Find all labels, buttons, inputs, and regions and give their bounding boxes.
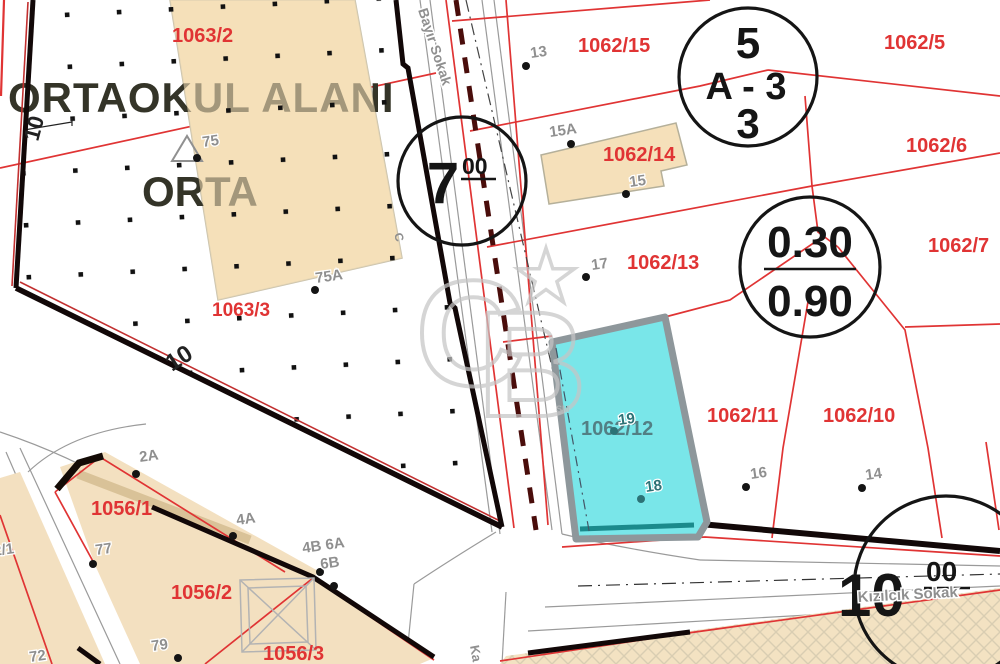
survey-point-72-label: 72 <box>28 647 47 664</box>
ratio-note-030-090-text: 0.30 <box>767 218 853 267</box>
parcel-label-1062-15: 1062/15 <box>578 35 650 57</box>
survey-point-79-label: 79 <box>150 636 169 655</box>
survey-point-77-dot <box>89 560 97 568</box>
parcel-line <box>768 70 1000 96</box>
survey-point-16-label: 16 <box>749 464 768 483</box>
survey-point-15-dot <box>622 190 630 198</box>
survey-point-15a-label: 15A <box>548 120 578 141</box>
parcel-label-1062-11: 1062/11 <box>707 405 778 427</box>
ratio-note-030-090-text: 0.90 <box>767 277 853 326</box>
map-canvas: ORTAOKUL ALANI ORTA C B <box>0 0 1000 664</box>
parcel-label-1063-3: 1063/3 <box>212 300 270 321</box>
survey-point-19-label: 19 <box>617 410 636 429</box>
survey-point-17-dot <box>582 273 590 281</box>
survey-point-2-1-label: 2/1 <box>0 540 15 560</box>
survey-point-14-dot <box>858 484 866 492</box>
survey-point-18-dot <box>637 495 645 503</box>
survey-point-77-label: 77 <box>94 540 113 559</box>
south-road-edge <box>502 592 506 664</box>
survey-point-15a-dot <box>567 140 575 148</box>
plan-note-7-00-text: 7 <box>427 151 459 216</box>
parcel-line <box>812 153 1000 186</box>
parcel-label-1056-2: 1056/2 <box>171 582 232 604</box>
survey-point-2a-label: 2A <box>138 446 160 466</box>
zoning-note-a3-text: 3 <box>736 100 759 147</box>
plan-note-7-00-text: 00 <box>462 153 488 179</box>
survey-point-17-label: 17 <box>590 255 609 274</box>
parcel-label-1056-3: 1056/3 <box>263 643 324 664</box>
parcel-label-1062-7: 1062/7 <box>928 235 989 257</box>
survey-point-14-label: 14 <box>864 465 884 484</box>
survey-point-4a-label: 4A <box>235 509 257 529</box>
survey-point-75a-dot <box>311 286 319 294</box>
parcel-line <box>452 0 710 21</box>
parcel-label-1056-1: 1056/1 <box>91 498 152 520</box>
parcel-label-1062-14: 1062/14 <box>603 144 676 166</box>
survey-point-15-label: 15 <box>628 172 647 191</box>
parcel-label-1062-13: 1062/13 <box>627 252 699 274</box>
survey-point-13-label: 13 <box>529 43 548 62</box>
survey-point-75-dot <box>193 154 201 162</box>
junction-arc <box>414 532 496 584</box>
survey-point-13-dot <box>522 62 530 70</box>
plan-note-10-00-text: 00 <box>926 556 957 587</box>
survey-point-6b-label: 6B <box>319 553 341 573</box>
parcel-line <box>838 247 942 538</box>
survey-point-18-label: 18 <box>644 477 663 496</box>
survey-point-79-dot <box>174 654 182 662</box>
parcel-line <box>905 324 1000 327</box>
survey-point-6b-dot <box>330 582 338 590</box>
zoning-note-a3: 5A - 33 <box>679 8 817 147</box>
watermark-tm: SM <box>556 404 570 414</box>
left-edge-red-line <box>1 0 4 96</box>
survey-point-4a-dot <box>229 532 237 540</box>
parcel-label-1062-5: 1062/5 <box>884 32 945 54</box>
survey-point-16-dot <box>742 483 750 491</box>
watermark-letter-b: B <box>478 280 586 448</box>
parcel-label-1063-2: 1063/2 <box>172 25 233 47</box>
street-name-south-clipped: Ka <box>467 644 485 664</box>
survey-point-2a-dot <box>132 470 140 478</box>
ratio-note-030-090: 0.300.90 <box>740 197 880 337</box>
survey-point-19-dot <box>610 427 618 435</box>
survey-point-75-label: 75 <box>201 132 220 151</box>
survey-point-4b6a-label: 4B 6A <box>301 534 346 557</box>
parcel-label-1062-6: 1062/6 <box>906 135 967 157</box>
cadastral-map: ORTAOKUL ALANI ORTA C B <box>0 0 1000 664</box>
zoning-note-a3-text: 5 <box>736 19 760 68</box>
parcel-line <box>986 442 999 530</box>
parcel-label-1062-10: 1062/10 <box>823 405 895 427</box>
